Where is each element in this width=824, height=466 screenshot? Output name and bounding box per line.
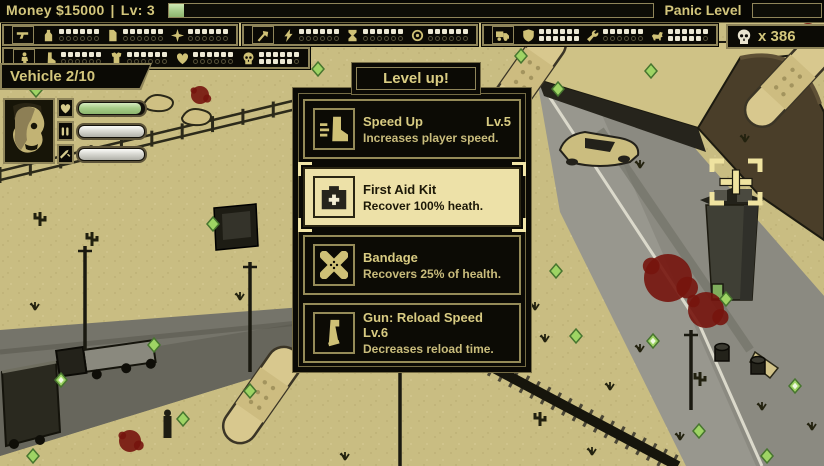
pip-filled (391, 29, 396, 34)
status-bar-row (57, 121, 147, 141)
pistol-icon (12, 26, 34, 44)
upgrade-pips (59, 29, 99, 41)
selection-corner (512, 218, 526, 232)
pip-filled (384, 29, 389, 34)
pip-filled (449, 29, 454, 34)
pip-empty (313, 36, 318, 41)
upgrade-slot-lightning (282, 29, 339, 42)
pip-empty (384, 36, 389, 41)
pip-empty (610, 36, 615, 41)
upgrade-slot-hourglass (346, 29, 403, 42)
pip-filled (682, 29, 687, 34)
first-aid-icon (313, 176, 355, 218)
pip-filled (75, 52, 80, 57)
pip-empty (94, 36, 99, 41)
status-bar-row (57, 144, 147, 164)
upgrade-pips (123, 29, 163, 41)
status-bar-fill (79, 149, 144, 160)
pip-filled (539, 36, 544, 41)
pip-filled (123, 29, 128, 34)
status-bar-row (57, 98, 147, 118)
pip-filled (334, 29, 339, 34)
option-name: First Aid Kit (363, 182, 436, 197)
pip-filled (151, 29, 156, 34)
pip-filled (689, 36, 694, 41)
divider: | (111, 2, 115, 18)
pip-filled (638, 29, 643, 34)
option-desc: Recovers 25% of health. (363, 267, 511, 281)
upgrade-pips (188, 29, 228, 41)
pip-empty (294, 59, 299, 64)
heart-icon (57, 98, 74, 118)
selection-corner (298, 162, 312, 176)
upgrade-slot-wrench (586, 29, 643, 42)
pip-filled (87, 29, 92, 34)
pip-filled (259, 59, 264, 64)
pip-filled (216, 29, 221, 34)
truck-icon (492, 26, 514, 44)
pip-filled (195, 29, 200, 34)
pip-filled (200, 52, 205, 57)
pip-filled (306, 29, 311, 34)
option-desc: Decreases reload time. (363, 342, 511, 356)
pip-empty (398, 36, 403, 41)
pip-filled (202, 29, 207, 34)
rock (182, 109, 211, 125)
pip-empty (320, 36, 325, 41)
pip-filled (127, 52, 132, 57)
pip-filled (603, 29, 608, 34)
pip-filled (567, 29, 572, 34)
pip-filled (207, 52, 212, 57)
option-level: Lv.5 (486, 114, 511, 129)
pip-empty (703, 36, 708, 41)
option-desc: Increases player speed. (363, 131, 511, 145)
pip-filled (223, 29, 228, 34)
pip-filled (320, 29, 325, 34)
pip-filled (188, 29, 193, 34)
pip-filled (456, 29, 461, 34)
pip-filled (668, 36, 673, 41)
pip-filled (703, 29, 708, 34)
option-name: Gun: Reload Speed Lv.6 (363, 310, 511, 340)
pip-empty (370, 36, 375, 41)
pip-empty (137, 36, 142, 41)
pip-filled (675, 36, 680, 41)
magazine-icon (313, 312, 355, 354)
level-up-dialog: Speed UpLv.5 Increases player speed. Fir… (293, 88, 531, 372)
pip-filled (546, 29, 551, 34)
star-icon (171, 29, 184, 42)
pip-empty (638, 36, 643, 41)
pip-filled (617, 29, 622, 34)
pip-filled (574, 36, 579, 41)
pip-empty (617, 36, 622, 41)
pip-empty (631, 36, 636, 41)
bandage-icon (313, 244, 355, 286)
armor-icon (110, 52, 123, 65)
upgrade-pips (193, 52, 233, 64)
scroll-icon (106, 29, 119, 42)
upgrade-pips (363, 29, 403, 41)
pip-empty (193, 59, 198, 64)
hourglass-icon (346, 29, 359, 42)
upgrade-pips (539, 29, 579, 41)
pip-empty (123, 36, 128, 41)
pip-empty (334, 36, 339, 41)
status-bar (76, 100, 147, 117)
rock (144, 95, 173, 111)
pip-filled (94, 29, 99, 34)
player-portrait (3, 98, 55, 164)
pip-empty (162, 59, 167, 64)
pip-empty (73, 36, 78, 41)
pip-filled (463, 29, 468, 34)
upgrade-slot-armor (110, 52, 167, 65)
status-bar-fill (79, 126, 144, 137)
pip-filled (73, 29, 78, 34)
selection-corner (512, 162, 526, 176)
pip-filled (266, 52, 271, 57)
pip-filled (280, 59, 285, 64)
pip-empty (158, 36, 163, 41)
pip-filled (221, 52, 226, 57)
pip-filled (130, 29, 135, 34)
pip-empty (151, 36, 156, 41)
boot-icon (44, 52, 57, 65)
option-desc: Recover 100% heath. (363, 199, 511, 213)
pip-filled (370, 29, 375, 34)
pip-filled (273, 52, 278, 57)
level-label: Lv: 3 (121, 2, 155, 18)
upgrade-pips (668, 29, 708, 41)
option-name: Speed Up (363, 114, 423, 129)
pip-filled (144, 29, 149, 34)
pip-filled (294, 52, 299, 57)
pip-filled (668, 29, 673, 34)
status-bar-fill (79, 103, 141, 114)
pip-filled (689, 29, 694, 34)
pip-filled (428, 29, 433, 34)
status-bar (76, 146, 147, 163)
pip-filled (696, 29, 701, 34)
upgrade-slot-star (171, 29, 228, 42)
pip-filled (287, 59, 292, 64)
vehicle-counter-label: Vehicle 2/10 (2, 65, 150, 88)
pip-empty (214, 59, 219, 64)
money-label: Money $15000 (6, 2, 105, 18)
pip-filled (435, 29, 440, 34)
pip-filled (209, 29, 214, 34)
pip-filled (61, 52, 66, 57)
pip-filled (82, 52, 87, 57)
pip-filled (273, 59, 278, 64)
pip-empty (195, 36, 200, 41)
upgrade-pips (299, 29, 339, 41)
pip-filled (66, 29, 71, 34)
pip-filled (560, 29, 565, 34)
pip-empty (87, 36, 92, 41)
pip-empty (435, 36, 440, 41)
upgrade-pips (428, 29, 468, 41)
pip-empty (456, 36, 461, 41)
pip-empty (449, 36, 454, 41)
pip-empty (327, 36, 332, 41)
pip-filled (148, 52, 153, 57)
level-up-title: Level up! (352, 63, 480, 94)
xp-bar-fill (169, 4, 184, 17)
pip-filled (675, 29, 680, 34)
pip-filled (162, 52, 167, 57)
upgrade-pips (61, 52, 101, 64)
upgrade-slot-bottle (42, 29, 99, 42)
pip-filled (134, 52, 139, 57)
pip-filled (299, 29, 304, 34)
pip-filled (363, 29, 368, 34)
parked-van (214, 204, 258, 250)
pip-filled (553, 29, 558, 34)
knife-icon (57, 144, 74, 164)
pip-filled (193, 52, 198, 57)
pip-filled (377, 29, 382, 34)
pip-filled (280, 52, 285, 57)
option-bandage[interactable]: Bandage Recovers 25% of health. (303, 235, 521, 295)
pip-filled (137, 29, 142, 34)
pip-empty (200, 59, 205, 64)
pip-empty (306, 36, 311, 41)
dog-icon (651, 29, 664, 42)
pip-empty (463, 36, 468, 41)
pip-empty (66, 36, 71, 41)
upgrade-slot-shield (522, 29, 579, 42)
pip-empty (221, 59, 226, 64)
pip-empty (207, 59, 212, 64)
pip-filled (682, 36, 687, 41)
player-status-bars (57, 98, 147, 167)
pip-empty (144, 36, 149, 41)
skull-icon (242, 52, 255, 65)
pip-filled (287, 52, 292, 57)
pip-filled (214, 52, 219, 57)
pip-empty (428, 36, 433, 41)
pip-empty (391, 36, 396, 41)
money-and-level: Money $15000|Lv: 3 (6, 2, 161, 18)
pip-empty (223, 36, 228, 41)
pip-empty (228, 59, 233, 64)
pip-filled (266, 59, 271, 64)
pip-filled (155, 52, 160, 57)
upgrade-slot-target (411, 29, 468, 42)
pip-filled (158, 29, 163, 34)
upgrade-pips (259, 52, 299, 64)
status-bar (76, 123, 147, 140)
portrait-face (5, 100, 53, 162)
pip-filled (560, 36, 565, 41)
pip-filled (696, 36, 701, 41)
barrel (715, 344, 729, 362)
pip-filled (259, 52, 264, 57)
pip-filled (539, 29, 544, 34)
upgrade-slot-scroll (106, 29, 163, 42)
pip-filled (567, 36, 572, 41)
upgrade-panel-skills (242, 24, 478, 46)
pip-empty (624, 36, 629, 41)
pip-filled (327, 29, 332, 34)
axe-icon (252, 26, 274, 44)
option-gun-reload-speed[interactable]: Gun: Reload Speed Lv.6 Decreases reload … (303, 303, 521, 363)
pip-filled (610, 29, 615, 34)
zombie-figure (164, 410, 172, 439)
pip-empty (603, 36, 608, 41)
pip-filled (398, 29, 403, 34)
pip-empty (155, 59, 160, 64)
pip-filled (546, 36, 551, 41)
speed-boot-icon (313, 108, 355, 150)
option-speed-up[interactable]: Speed UpLv.5 Increases player speed. (303, 99, 521, 159)
panic-level-label: Panic Level (654, 2, 752, 18)
pip-filled (80, 29, 85, 34)
kill-counter: x 386 (726, 24, 824, 49)
pip-empty (80, 36, 85, 41)
pip-filled (68, 52, 73, 57)
pip-filled (59, 29, 64, 34)
target-icon (411, 29, 424, 42)
shield-icon (522, 29, 535, 42)
pip-empty (377, 36, 382, 41)
upgrade-slot-heart (176, 52, 233, 65)
upgrade-panel-vehicle (482, 24, 718, 46)
pip-filled (574, 29, 579, 34)
upgrade-panel-weapons (2, 24, 238, 46)
xp-bar (168, 3, 654, 18)
panic-bar (752, 3, 822, 18)
upgrade-pips (127, 52, 167, 64)
pip-empty (188, 36, 193, 41)
heart-icon (176, 52, 189, 65)
pip-empty (130, 36, 135, 41)
pip-filled (96, 52, 101, 57)
lightning-icon (282, 29, 295, 42)
pip-filled (442, 29, 447, 34)
pip-filled (89, 52, 94, 57)
pip-empty (202, 36, 207, 41)
ammo-icon (57, 121, 74, 141)
pip-filled (553, 36, 558, 41)
barrel (751, 357, 765, 375)
pip-filled (313, 29, 318, 34)
pip-empty (299, 36, 304, 41)
vehicle-counter: Vehicle 2/10 (0, 63, 152, 90)
game-screen: Money $15000|Lv: 3 Panic Level x 386 Veh… (0, 0, 824, 466)
selection-corner (298, 218, 312, 232)
option-name: Bandage (363, 250, 418, 265)
skull-icon (736, 29, 752, 45)
pip-filled (624, 29, 629, 34)
upgrade-pips (603, 29, 643, 41)
wrench-icon (586, 29, 599, 42)
pip-filled (228, 52, 233, 57)
pip-empty (209, 36, 214, 41)
bottle-icon (42, 29, 55, 42)
pip-filled (631, 29, 636, 34)
pip-empty (59, 36, 64, 41)
option-first-aid-kit[interactable]: First Aid Kit Recover 100% heath. (303, 167, 521, 227)
kill-count-value: x 386 (758, 28, 796, 45)
upgrade-slot-skull (242, 52, 299, 65)
pip-empty (216, 36, 221, 41)
upgrade-slot-dog (651, 29, 708, 42)
upgrade-slot-boot (44, 52, 101, 65)
pip-empty (363, 36, 368, 41)
pip-filled (141, 52, 146, 57)
pip-empty (442, 36, 447, 41)
